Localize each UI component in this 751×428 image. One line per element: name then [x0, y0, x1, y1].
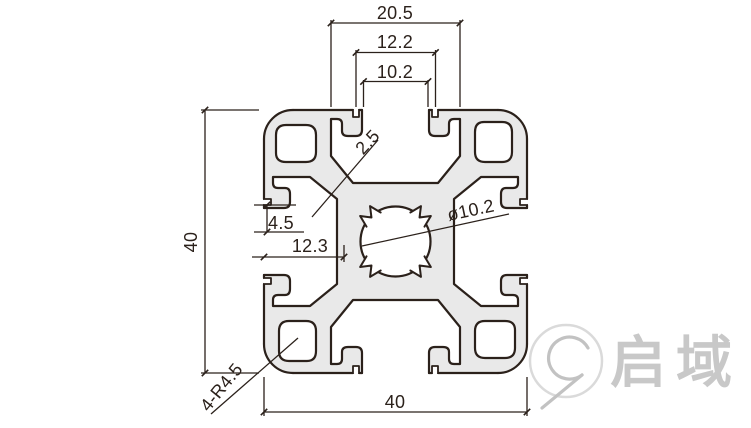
dim-profile-height-40	[201, 107, 259, 376]
drawing-page: 20.5 12.2 10.2 40 40 4.5 12.3 2.5 ø10.2 …	[0, 0, 751, 428]
label-slot-groove-width: 12.2	[377, 32, 413, 52]
brand-watermark: 启域	[530, 325, 742, 408]
label-profile-height: 40	[181, 232, 201, 253]
label-corner-radius: 4-R4.5	[196, 359, 247, 415]
logo-wordmark: 启域	[610, 331, 742, 394]
label-profile-width: 40	[385, 392, 406, 412]
dim-slot-opening-10_2	[360, 78, 431, 107]
label-lip-depth: 4.5	[268, 213, 294, 233]
label-slot-back-width: 20.5	[377, 3, 413, 23]
technical-drawing-svg: 20.5 12.2 10.2 40 40 4.5 12.3 2.5 ø10.2 …	[0, 0, 751, 428]
logo-q-arc-icon	[549, 337, 588, 379]
label-slot-opening-width: 10.2	[377, 62, 413, 82]
label-groove-depth: 12.3	[292, 236, 328, 256]
